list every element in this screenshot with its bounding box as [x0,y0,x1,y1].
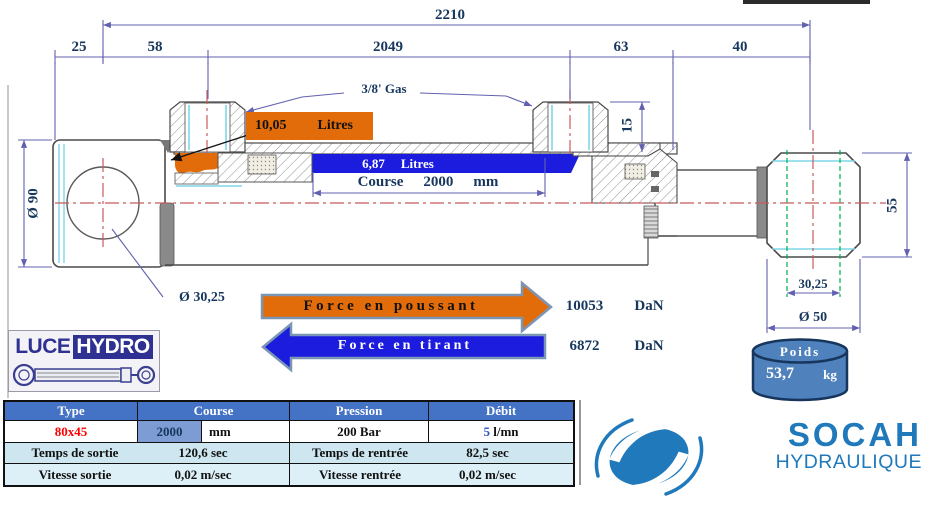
hydraulic-cylinder-datasheet: 2210 25 58 2049 63 40 3/8' Gas 15 Ø 90 Ø… [0,0,926,506]
dim-rodend-diameter: Ø 50 [776,309,850,326]
type-value: 80x45 [5,421,138,443]
luce-hydro-wordmark: LUCE HYDRO [9,335,159,359]
out-speed-label: Vitesse sortie [5,467,145,483]
pull-force-label: Force en tirant [280,338,530,354]
out-time-value: 120,6 sec [145,445,289,461]
push-force-label: Force en poussant [266,298,516,315]
header-debit: Débit [429,402,573,421]
rod-seal [625,164,645,179]
dim-25: 25 [59,39,99,56]
dim-rodend-hole: 30,25 [776,276,850,291]
pull-volume-unit: Litres [401,156,434,172]
dim-cap-diameter: Ø 90 [26,176,43,232]
dim-total: 2210 [420,7,480,24]
piston-seal [248,155,276,174]
course-value: 2000 [138,421,202,442]
dim-58: 58 [135,39,175,56]
socah-wordmark: SOCAH HYDRAULIQUE [706,418,922,473]
push-force-unit: DaN [626,298,672,315]
pull-volume-value: 6,87 [362,156,385,172]
tube-weld-band [160,203,174,266]
gland-ring [644,206,658,238]
header-pression: Pression [290,402,429,421]
dim-rodend-height: 55 [885,178,902,234]
push-volume-unit: Litres [317,118,353,134]
luce-text: LUCE [15,335,70,359]
weight-value: 53,7 [754,365,806,382]
in-time-label: Temps de rentrée [290,445,430,461]
pressure-value: 200 Bar [290,421,429,443]
push-volume-box: 10,05 Litres [246,112,373,140]
out-speed-value: 0,02 m/sec [145,467,289,483]
flow-value-cell: 5 l/mn [429,421,573,443]
dim-hole-diameter: Ø 30,25 [162,289,242,306]
port-thread-label: 3/8' Gas [338,81,430,96]
stroke-label: Course 2000 mm [333,174,523,191]
pull-force-value: 6872 [552,338,617,355]
out-time-label: Temps de sortie [5,445,145,461]
push-force-value: 10053 [552,298,617,315]
pull-volume-label: 6,87 Litres [312,155,484,173]
in-time-value: 82,5 sec [430,445,573,461]
weight-unit: kg [812,367,848,382]
push-volume-value: 10,05 [255,118,287,134]
header-course: Course [138,402,290,421]
dim-40: 40 [720,39,760,56]
in-speed-value: 0,02 m/sec [430,467,573,483]
spec-table: Type Course Pression Débit 80x45 2000 mm… [3,400,575,487]
table-header-row: Type Course Pression Débit [5,402,573,421]
in-speed-label: Vitesse rentrée [290,467,430,483]
table-time-row: Temps de sortie 120,6 sec Temps de rentr… [5,443,573,464]
header-type: Type [5,402,138,421]
course-unit: mm [202,424,231,440]
luce-hydro-logo: LUCE HYDRO [8,330,160,392]
dim-port-height: 15 [620,98,637,154]
table-speed-row: Vitesse sortie 0,02 m/sec Vitesse rentré… [5,464,573,485]
hydro-text: HYDRO [73,335,152,359]
table-value-row: 80x45 2000 mm 200 Bar 5 l/mn [5,421,573,443]
socah-name: SOCAH [706,418,922,452]
luce-cylinder-icon [10,360,158,390]
socah-subtitle: HYDRAULIQUE [706,452,922,473]
pull-force-unit: DaN [626,338,672,355]
socah-logo-icon [590,410,708,502]
dim-2049: 2049 [358,39,418,56]
top-edge-strip [743,0,870,4]
dim-63: 63 [601,39,641,56]
weight-label: Poids [762,344,838,359]
flow-unit: l/mn [490,424,519,440]
